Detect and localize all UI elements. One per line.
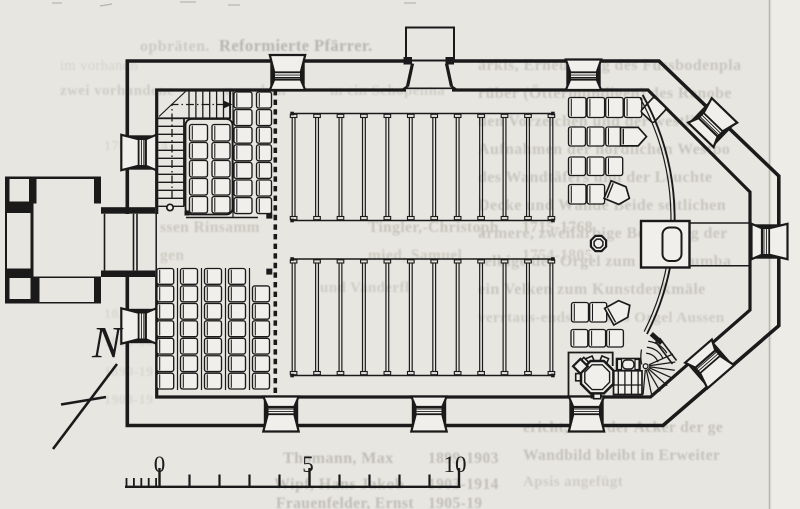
svg-text:1754-1805: 1754-1805 — [522, 247, 593, 264]
svg-text:1905-19: 1905-19 — [428, 495, 482, 509]
svg-text:Tingler,-Christoph: Tingler,-Christoph — [368, 219, 499, 236]
svg-text:opbräten.: opbräten. — [140, 38, 210, 55]
svg-text:5: 5 — [302, 452, 314, 477]
svg-text:ssen Rinsamm: ssen Rinsamm — [160, 219, 260, 236]
svg-text:1903-1914: 1903-1914 — [428, 476, 499, 493]
svg-text:mied, Samuel: mied, Samuel — [368, 247, 463, 264]
svg-text:selbige der Orgel zum Kanz: selbige der Orgel zum Kanzelumba — [478, 253, 731, 270]
svg-text:ein Velken zum Kunstdenkmäl: ein Velken zum Kunstdenkmäle — [478, 281, 706, 298]
svg-text:ericht, dass der Acker der: ericht, dass der Acker der ge — [523, 419, 723, 436]
svg-text:Reformierte Pfärrer.: Reformierte Pfärrer. — [219, 36, 373, 55]
svg-text:0: 0 — [154, 452, 166, 477]
svg-text:Thomann, Max: Thomann, Max — [283, 450, 394, 467]
svg-text:1715-1768: 1715-1768 — [522, 219, 593, 236]
svg-text:N: N — [91, 318, 124, 367]
svg-text:gen: gen — [160, 247, 184, 264]
svg-text:Frauenfelder, Ernst: Frauenfelder, Ernst — [276, 495, 414, 509]
svg-text:10: 10 — [444, 452, 467, 477]
svg-text:Apsis angefügt: Apsis angefügt — [523, 474, 623, 490]
svg-text:Wandbild bleibt in Erweiter: Wandbild bleibt in Erweiter — [523, 447, 720, 464]
